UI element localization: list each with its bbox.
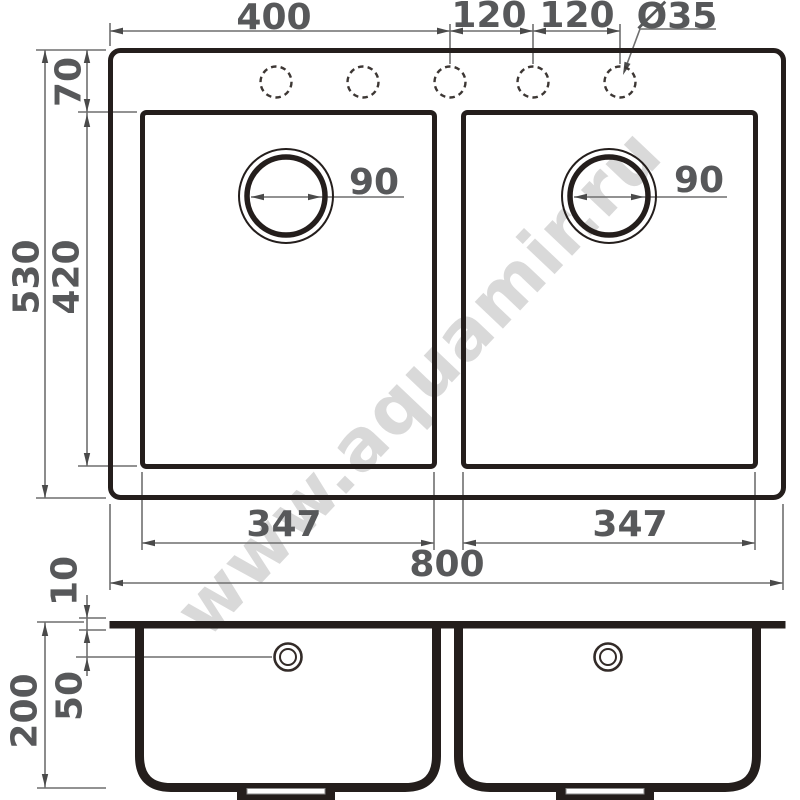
- dim-120-first: 120: [451, 0, 526, 36]
- dim-90-right: 90: [674, 160, 724, 201]
- sink-dimension-drawing: www.aquamir.ru: [0, 0, 800, 800]
- side-rim: [110, 621, 786, 629]
- tap-hole-1: [261, 67, 292, 98]
- dim-347-right: 347: [592, 504, 667, 545]
- dim-347-left: 347: [246, 504, 321, 545]
- dim-90-left: 90: [349, 162, 399, 203]
- dim-800: 800: [409, 544, 484, 585]
- dim-530: 530: [7, 239, 48, 314]
- left-drain: [239, 149, 333, 243]
- dim-diameter-35: Ø35: [637, 0, 718, 37]
- dim-400: 400: [236, 0, 311, 38]
- dim-50: 50: [50, 671, 91, 721]
- side-left-drain-fitting: [237, 785, 335, 800]
- side-right-overflow: [595, 644, 622, 671]
- tap-hole-3: [435, 67, 466, 98]
- dim-200: 200: [5, 673, 46, 748]
- top-view: [111, 51, 784, 498]
- tap-hole-2: [348, 67, 379, 98]
- side-left-overflow: [275, 644, 302, 671]
- dim-120-second: 120: [539, 0, 614, 36]
- tap-hole-5: [605, 67, 636, 98]
- side-right-drain-fitting: [556, 785, 654, 800]
- dim-10: 10: [45, 556, 86, 606]
- sink-outer-outline: [111, 51, 784, 498]
- side-view: [110, 621, 786, 800]
- tap-hole-4: [518, 67, 549, 98]
- dim-70: 70: [49, 57, 90, 107]
- dim-420: 420: [47, 239, 88, 314]
- technical-drawing-page: www.aquamir.ru: [0, 0, 800, 800]
